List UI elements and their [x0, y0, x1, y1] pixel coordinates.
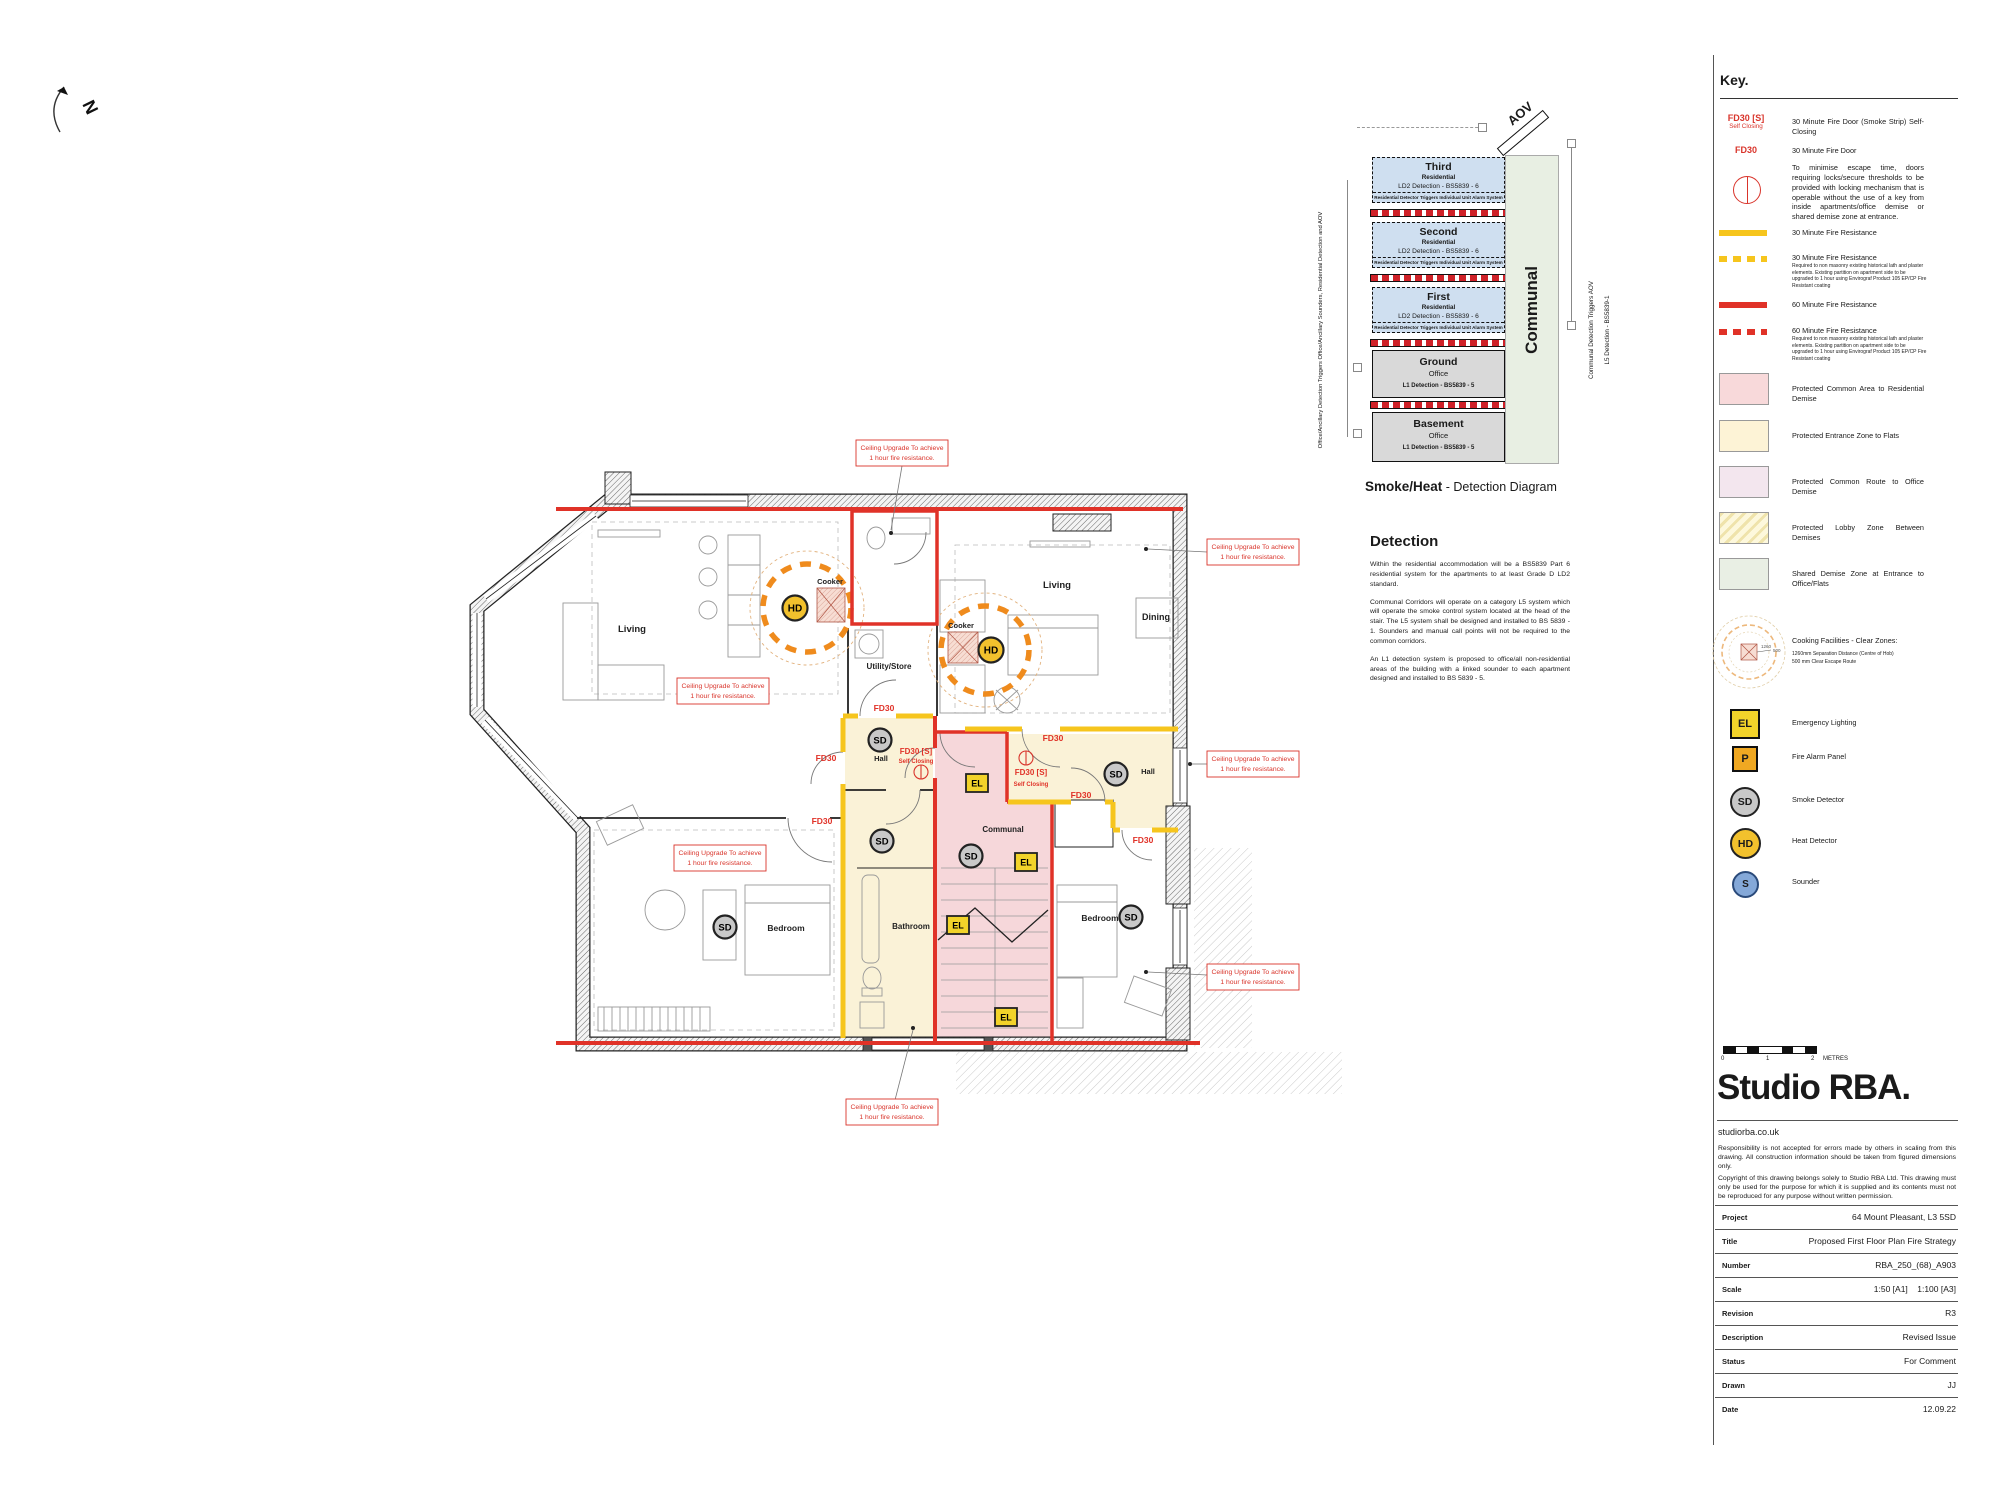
tb-row-description: DescriptionRevised Issue — [1715, 1325, 1958, 1350]
svg-text:1 hour fire resistance.: 1 hour fire resistance. — [687, 860, 752, 867]
svg-text:EL: EL — [1000, 1013, 1012, 1023]
fd30s-label: FD30 [S] — [900, 747, 933, 756]
svg-text:SD: SD — [873, 736, 886, 747]
tb-row-date: Date12.09.22 — [1715, 1397, 1958, 1422]
bracket-marker — [1353, 429, 1362, 438]
tb-row-project: Project64 Mount Pleasant, L3 5SD — [1715, 1205, 1958, 1230]
wall-pier — [1166, 806, 1190, 904]
svg-text:Ceiling Upgrade To achieve: Ceiling Upgrade To achieve — [851, 1104, 934, 1111]
fire-separation-bar — [1370, 209, 1507, 217]
swatch-label: Protected Lobby Zone Between Demises — [1792, 523, 1924, 543]
swatch-label: Protected Entrance Zone to Flats — [1792, 431, 1924, 441]
pavement-hatch-side — [1194, 848, 1252, 1048]
svg-text:1 hour fire resistance.: 1 hour fire resistance. — [869, 455, 934, 462]
fd30-label: FD30 — [812, 816, 833, 826]
res60-label: 60 Minute Fire Resistance — [1792, 300, 1924, 310]
device-label: Smoke Detector — [1792, 795, 1924, 805]
floor-box-second: Second Residential LD2 Detection - BS583… — [1372, 222, 1505, 268]
callout-marker — [1478, 123, 1487, 132]
device-label: Emergency Lighting — [1792, 718, 1924, 728]
tb-row-status: StatusFor Comment — [1715, 1349, 1958, 1374]
svg-text:Ceiling Upgrade To achieve: Ceiling Upgrade To achieve — [861, 445, 944, 452]
room-label: Hall — [1141, 767, 1155, 776]
detection-paragraph: An L1 detection system is proposed to of… — [1370, 655, 1570, 685]
swatch-entrance-flats — [1719, 420, 1769, 452]
fd30-desc: 30 Minute Fire Door — [1792, 146, 1924, 156]
ceiling-upgrade-note: Ceiling Upgrade To achieve1 hour fire re… — [674, 845, 766, 871]
res30-dashed-label: 30 Minute Fire Resistance — [1792, 253, 1924, 263]
fd30-key: FD30 — [1717, 145, 1775, 155]
swatch-label: Protected Common Area to Residential Dem… — [1792, 384, 1924, 404]
scale-2: 2 — [1811, 1056, 1814, 1062]
scale-bar — [1723, 1046, 1817, 1054]
res30-upgrade-note: Required to non masonry existing histori… — [1792, 263, 1928, 289]
ceiling-upgrade-note: Ceiling Upgrade To achieve1 hour fire re… — [1207, 964, 1299, 990]
device-label: Sounder — [1792, 877, 1924, 887]
detection-text-block: Detection Within the residential accommo… — [1370, 533, 1570, 684]
fd30-label: FD30 — [816, 753, 837, 763]
fire-separation-bar — [1370, 274, 1507, 282]
fire-separation-bar — [1370, 401, 1507, 409]
ceiling-upgrade-note: Ceiling Upgrade To achieve1 hour fire re… — [856, 440, 948, 466]
lock-icon — [1733, 176, 1761, 204]
ceiling-upgrade-note: Ceiling Upgrade To achieve1 hour fire re… — [846, 1099, 938, 1125]
fd30s-desc: 30 Minute Fire Door (Smoke Strip) Self-C… — [1792, 117, 1924, 137]
bracket-marker — [1567, 321, 1576, 330]
svg-text:Ceiling Upgrade To achieve: Ceiling Upgrade To achieve — [1212, 544, 1295, 551]
svg-text:1 hour fire resistance.: 1 hour fire resistance. — [859, 1114, 924, 1121]
bracket-line — [1571, 143, 1572, 325]
room-label: Utility/Store — [867, 662, 912, 671]
cooker-left — [817, 588, 845, 622]
svg-text:1260: 1260 — [1761, 644, 1772, 649]
room-label: Communal — [982, 825, 1023, 834]
svg-text:SD: SD — [875, 837, 888, 848]
cooking-label: Cooking Facilities - Clear Zones: — [1792, 636, 1924, 646]
room-label: Living — [618, 624, 646, 635]
svg-text:SD: SD — [1109, 770, 1122, 781]
res30-label: 30 Minute Fire Resistance — [1792, 228, 1924, 238]
diagram-left-note: Office/Ancillary Detection Triggers Offi… — [1318, 210, 1326, 450]
room-label: Living — [1043, 580, 1071, 591]
svg-text:EL: EL — [1020, 858, 1032, 868]
scale-1: 1 — [1766, 1056, 1769, 1062]
key-panel: Key. FD30 [S] Self Closing 30 Minute Fir… — [1717, 60, 2000, 960]
bracket-marker — [1353, 363, 1362, 372]
wall-pier — [1053, 514, 1111, 531]
bracket-marker — [1567, 139, 1576, 148]
cooker-label: Cooker — [948, 621, 974, 630]
communal-strip-label: Communal — [1522, 266, 1542, 354]
fd30s-label: FD30 [S] — [1015, 768, 1048, 777]
north-arrow: N — [30, 60, 150, 160]
room-label: Bedroom — [767, 923, 805, 933]
fd30-label: FD30 — [874, 703, 895, 713]
wall-pier — [1166, 968, 1190, 1040]
floor-plan: Living Living Dining Utility/Store Hall … — [420, 430, 1380, 1140]
floor-box-ground: Ground Office L1 Detection - BS5839 - 5 — [1372, 350, 1505, 398]
fire-30min-line-icon — [1719, 230, 1767, 236]
fire-60min-dashed-icon — [1719, 329, 1767, 335]
swatch-shared-demise — [1719, 558, 1769, 590]
svg-text:1 hour fire resistance.: 1 hour fire resistance. — [1220, 979, 1285, 986]
res60-dashed-label: 60 Minute Fire Resistance — [1792, 326, 1924, 336]
chimney — [605, 472, 631, 504]
cooking-note-2: 500 mm Clear Escape Route — [1792, 659, 1928, 666]
north-label: N — [78, 97, 102, 117]
heat-detector-icon: HD — [1730, 828, 1761, 859]
svg-text:Ceiling Upgrade To achieve: Ceiling Upgrade To achieve — [1212, 756, 1295, 763]
fd30-label: FD30 — [1043, 733, 1064, 743]
diagram-right-note-2: L5 Detection - BS5839-1 — [1604, 215, 1611, 445]
tb-row-scale: Scale1:50 [A1] 1:100 [A3] — [1715, 1277, 1958, 1302]
fire-alarm-panel-icon: P — [1732, 746, 1758, 772]
lock-desc: To minimise escape time, doors requiring… — [1792, 163, 1924, 222]
cooking-note-1: 1260mm Separation Distance (Centre of Ho… — [1792, 651, 1928, 658]
room-label: Dining — [1142, 612, 1170, 622]
svg-text:HD: HD — [788, 604, 802, 615]
scale-0: 0 — [1721, 1056, 1724, 1062]
svg-text:EL: EL — [952, 921, 964, 931]
callout-line — [1357, 127, 1483, 128]
fire-60min-line-icon — [1719, 302, 1767, 308]
ceiling-upgrade-note: Ceiling Upgrade To achieve1 hour fire re… — [677, 678, 769, 704]
svg-text:1 hour fire resistance.: 1 hour fire resistance. — [1220, 554, 1285, 561]
fd30-label: FD30 — [1071, 790, 1092, 800]
device-label: Fire Alarm Panel — [1792, 752, 1924, 762]
website: studiorba.co.uk — [1718, 1127, 1779, 1137]
disclaimer-1: Responsibility is not accepted for error… — [1718, 1144, 1956, 1172]
device-label: Heat Detector — [1792, 836, 1924, 846]
svg-text:Ceiling Upgrade To achieve: Ceiling Upgrade To achieve — [1212, 969, 1295, 976]
communal-strip: Communal — [1505, 155, 1559, 464]
self-closing-label: Self Closing — [899, 759, 934, 765]
swatch-label: Protected Common Route to Office Demise — [1792, 477, 1924, 497]
svg-text:EL: EL — [971, 779, 983, 789]
zone-entrance-left — [845, 718, 933, 1040]
detection-paragraph: Communal Corridors will operate on a cat… — [1370, 598, 1570, 647]
diagram-caption: Smoke/Heat - Detection Diagram — [1365, 478, 1625, 496]
fd30-label: FD30 — [1133, 835, 1154, 845]
res60-upgrade-note: Required to non masonry existing histori… — [1792, 336, 1928, 362]
key-heading: Key. — [1720, 72, 1749, 88]
swatch-label: Shared Demise Zone at Entrance to Office… — [1792, 569, 1924, 589]
rule — [1717, 1120, 1958, 1121]
pavement-hatch — [956, 1052, 1342, 1094]
svg-text:HD: HD — [984, 646, 998, 657]
svg-text:Ceiling Upgrade To achieve: Ceiling Upgrade To achieve — [682, 683, 765, 690]
cooking-clear-zone-icon: 1260 500 — [1709, 612, 1789, 692]
detection-diagram: AOV Third Residential LD2 Detection - BS… — [1310, 100, 1655, 520]
diagram-right-note-1: Communal Detection Triggers AOV — [1588, 215, 1595, 445]
svg-text:Ceiling Upgrade To achieve: Ceiling Upgrade To achieve — [679, 850, 762, 857]
floor-box-third: Third Residential LD2 Detection - BS5839… — [1372, 157, 1505, 203]
cooker-clear-zones — [750, 551, 1042, 707]
room-label: Bedroom — [1081, 913, 1119, 923]
panel-divider — [1713, 55, 1714, 1445]
svg-text:1 hour fire resistance.: 1 hour fire resistance. — [1220, 766, 1285, 773]
ceiling-upgrade-note: Ceiling Upgrade To achieve1 hour fire re… — [1207, 751, 1299, 777]
svg-text:SD: SD — [964, 852, 977, 863]
swatch-common-residential — [1719, 373, 1769, 405]
disclaimer-2: Copyright of this drawing belongs solely… — [1718, 1174, 1956, 1202]
drawing-sheet: N — [0, 0, 2000, 1507]
floor-box-basement: Basement Office L1 Detection - BS5839 - … — [1372, 412, 1505, 462]
smoke-detector-icon: SD — [1730, 787, 1760, 817]
ceiling-upgrade-note: Ceiling Upgrade To achieve1 hour fire re… — [1207, 539, 1299, 565]
cooker-label: Cooker — [817, 577, 843, 586]
room-label: Bathroom — [892, 922, 930, 931]
swatch-lobby-zone — [1719, 512, 1769, 544]
room-label: Hall — [874, 754, 888, 763]
self-closing-label: Self Closing — [1014, 782, 1049, 788]
fd30s-key: FD30 [S] Self Closing — [1717, 113, 1775, 130]
detection-heading: Detection — [1370, 533, 1570, 550]
tb-row-title: TitleProposed First Floor Plan Fire Stra… — [1715, 1229, 1958, 1254]
fire-30min-dashed-icon — [1719, 256, 1767, 262]
svg-text:SD: SD — [1124, 913, 1137, 924]
title-block: 0 1 2 METRES Studio RBA. studiorba.co.uk… — [1715, 1040, 2000, 1470]
fire-separation-bar — [1370, 339, 1507, 347]
tb-row-revision: RevisionR3 — [1715, 1301, 1958, 1326]
swatch-office-route — [1719, 466, 1769, 498]
detection-paragraph: Within the residential accommodation wil… — [1370, 560, 1570, 590]
cooker-right — [948, 632, 978, 663]
svg-text:1 hour fire resistance.: 1 hour fire resistance. — [690, 693, 755, 700]
floor-box-first: First Residential LD2 Detection - BS5839… — [1372, 287, 1505, 333]
svg-text:500: 500 — [1773, 648, 1781, 653]
key-rule — [1720, 98, 1958, 99]
scale-unit: METRES — [1823, 1056, 1848, 1062]
bracket-line — [1347, 180, 1348, 437]
sounder-icon: S — [1732, 871, 1759, 898]
svg-text:SD: SD — [718, 923, 731, 934]
emergency-light-icon: EL — [1730, 709, 1760, 739]
tb-row-number: NumberRBA_250_(68)_A903 — [1715, 1253, 1958, 1278]
tb-row-drawn: DrawnJJ — [1715, 1373, 1958, 1398]
studio-rba-logo: Studio RBA. — [1717, 1068, 1910, 1108]
